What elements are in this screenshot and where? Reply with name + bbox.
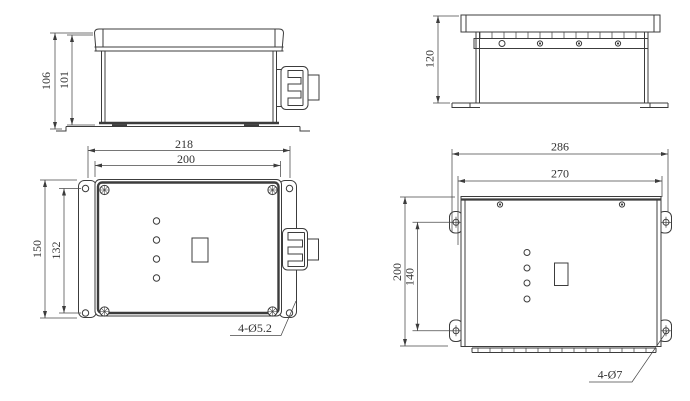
dim-label-overall-width: 218 xyxy=(175,137,193,151)
screw-icon xyxy=(576,41,581,46)
dim-label-overall-height: 106 xyxy=(39,72,53,90)
arrow-left-icon xyxy=(452,152,459,156)
dim-label-body-width: 200 xyxy=(177,152,195,166)
lid-plate xyxy=(461,15,660,32)
dim-label-height: 120 xyxy=(423,50,437,68)
dim-label-overall-depth: 150 xyxy=(30,240,44,258)
dim-label-hole-spacing: 140 xyxy=(403,268,417,286)
mounting-feet xyxy=(452,103,668,108)
hole-note-label: 4-Ø7 xyxy=(598,368,623,382)
dim-hole-spacing-140: 140 xyxy=(403,222,453,330)
hole-note-label: 4-Ø5.2 xyxy=(238,321,272,335)
gland-body xyxy=(283,229,308,271)
arrow-up-icon xyxy=(403,197,407,204)
arrow-right-icon xyxy=(661,152,668,156)
front-view-small-box: 106 101 xyxy=(39,29,319,131)
technical-drawing-page: 106 101 120 xyxy=(0,0,690,401)
screw-icon xyxy=(615,41,620,46)
top-view-large-box: 286 270 200 140 4-Ø7 xyxy=(390,140,672,383)
arrow-right-icon xyxy=(655,179,662,183)
gland-body xyxy=(281,67,308,110)
dim-hole-spacing-132: 132 xyxy=(49,189,81,314)
lid-band xyxy=(95,29,284,51)
arrow-up-icon xyxy=(416,222,420,229)
dim-lines xyxy=(67,35,95,125)
cable-gland-side xyxy=(277,67,320,110)
arrow-down-icon xyxy=(43,311,47,318)
dim-lines xyxy=(413,222,453,330)
dim-body-width-200: 200 xyxy=(95,152,281,177)
arrow-right-icon xyxy=(274,164,281,168)
arrow-up-icon xyxy=(70,35,74,42)
screw-icon xyxy=(537,41,542,46)
arrow-left-icon xyxy=(458,179,465,183)
dim-overall-depth-200: 200 xyxy=(390,197,455,346)
lid-outline xyxy=(95,29,284,51)
arrow-down-icon xyxy=(403,339,407,346)
arrow-down-icon xyxy=(70,118,74,125)
screw-icon xyxy=(497,202,502,207)
gland-cap xyxy=(308,239,319,260)
corner-screw-icon xyxy=(100,307,109,316)
dim-label-body-height: 101 xyxy=(57,71,71,89)
arrow-down-icon xyxy=(436,96,440,103)
screw-icon xyxy=(499,41,505,47)
corner-screw-icon xyxy=(268,307,277,316)
flange-hole xyxy=(82,185,88,191)
dim-lines xyxy=(433,16,459,103)
dim-body-height-101: 101 xyxy=(57,35,95,125)
arrow-right-icon xyxy=(283,149,290,153)
bottom-fin-strip xyxy=(472,348,656,353)
dim-label-hole-spacing: 132 xyxy=(49,242,63,260)
arrow-down-icon xyxy=(416,324,420,331)
left-flange xyxy=(79,181,97,318)
arrow-up-icon xyxy=(53,33,57,40)
corner-screw-icon xyxy=(268,185,277,194)
arrow-left-icon xyxy=(95,164,102,168)
box-outline xyxy=(461,197,661,347)
dim-height-120: 120 xyxy=(423,16,460,103)
arrow-up-icon xyxy=(436,16,440,23)
flange-hole xyxy=(82,310,88,316)
dim-label-body-width: 270 xyxy=(551,167,569,181)
arrow-up-icon xyxy=(43,180,47,187)
flange-hole xyxy=(286,185,292,191)
dim-label-overall-width: 286 xyxy=(551,140,569,154)
drawing-svg: 106 101 120 xyxy=(0,0,690,401)
box-outline xyxy=(95,180,282,317)
screw-icon xyxy=(619,202,624,207)
mounting-base-feet xyxy=(56,127,310,132)
side-view-large-box: 120 xyxy=(423,15,669,108)
fin-hatch-ticks xyxy=(480,33,636,39)
cable-gland-top xyxy=(283,229,319,271)
corner-screw-icon xyxy=(100,185,109,194)
top-view-small-box: 218 200 150 132 4-Ø5.2 xyxy=(30,137,319,336)
gland-cap xyxy=(308,75,319,100)
body-walls xyxy=(102,51,277,122)
bottom-fin-ticks xyxy=(478,348,646,353)
gland-connectors xyxy=(277,70,282,107)
arrow-left-icon xyxy=(88,149,95,153)
arrow-up-icon xyxy=(62,189,66,196)
arrow-down-icon xyxy=(62,306,66,313)
arrow-down-icon xyxy=(53,122,57,129)
